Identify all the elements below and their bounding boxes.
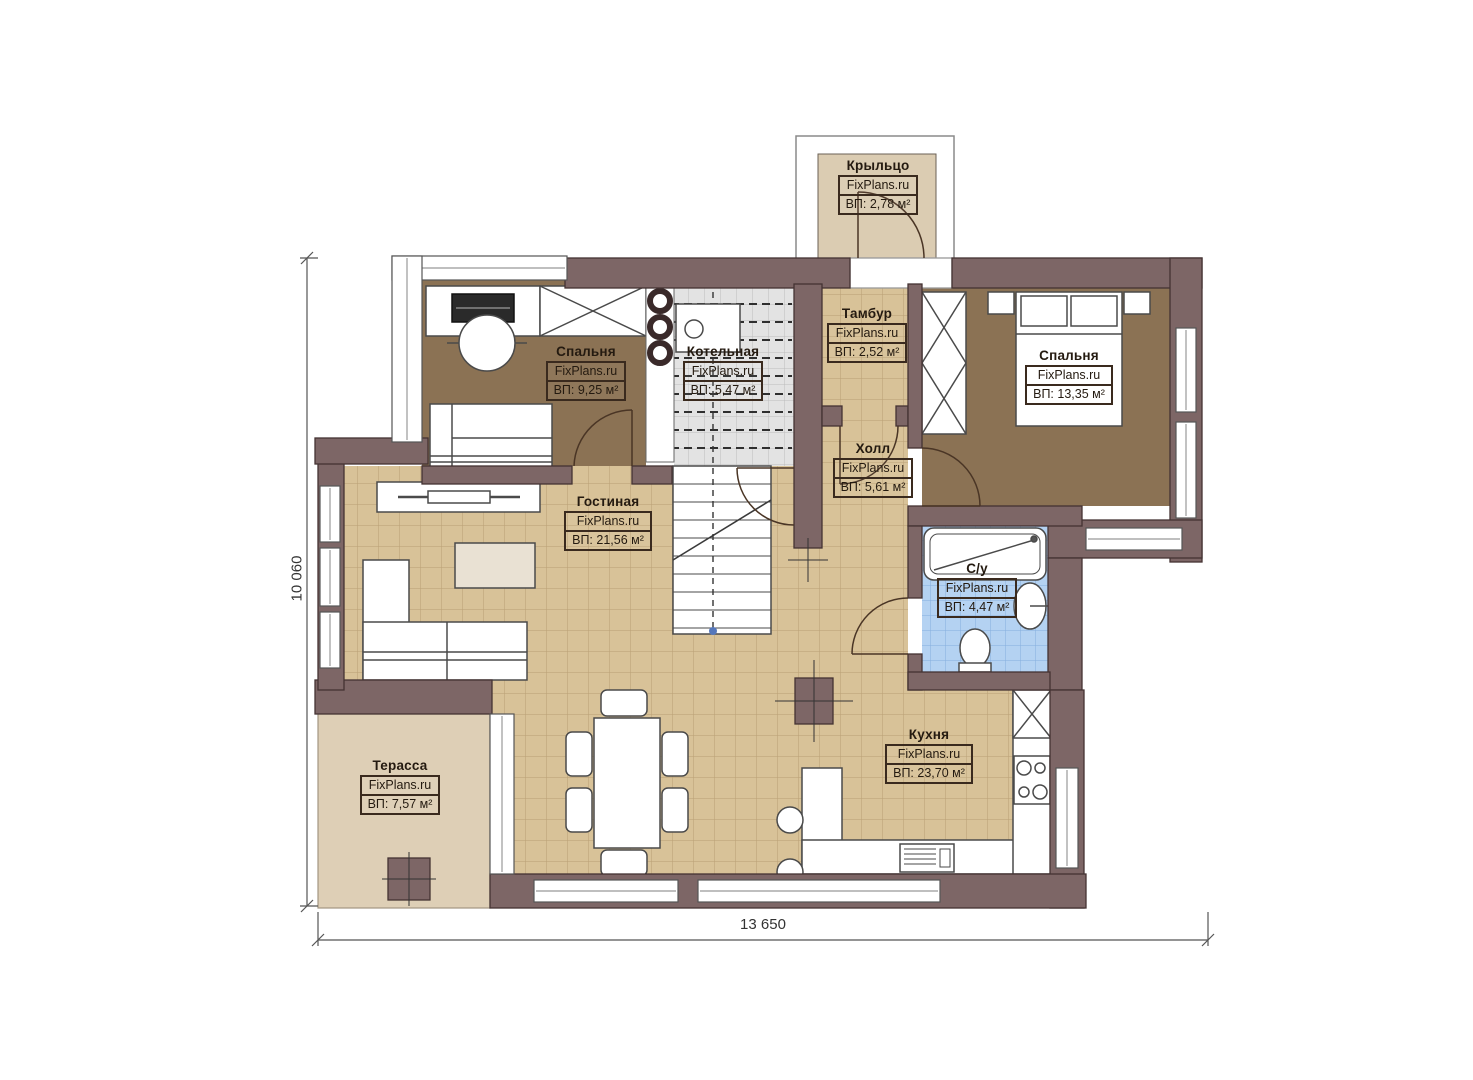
- room-label-bedroom1: Спальня FixPlans.ru ВП: 9,25 м²: [520, 344, 652, 401]
- nightstand: [1124, 292, 1150, 314]
- room-brand: FixPlans.ru: [362, 777, 439, 794]
- toilet: [960, 629, 990, 667]
- room-area: ВП: 23,70 м²: [887, 763, 971, 782]
- room-name: Крыльцо: [812, 158, 944, 173]
- room-label-boxes: FixPlans.ru ВП: 5,61 м²: [833, 458, 914, 498]
- floor-plan: Крыльцо FixPlans.ru ВП: 2,78 м² Спальня …: [0, 0, 1473, 1080]
- room-brand: FixPlans.ru: [685, 363, 762, 380]
- room-name: Спальня: [1003, 348, 1135, 363]
- room-name: Кухня: [863, 727, 995, 742]
- coffee-table: [455, 543, 535, 588]
- room-label-boxes: FixPlans.ru ВП: 2,78 м²: [838, 175, 919, 215]
- room-name: Холл: [807, 441, 939, 456]
- room-label-boiler: Котельная FixPlans.ru ВП: 5,47 м²: [657, 344, 789, 401]
- room-label-terrace: Терасса FixPlans.ru ВП: 7,57 м²: [334, 758, 466, 815]
- room-label-boxes: FixPlans.ru ВП: 23,70 м²: [885, 744, 973, 784]
- pillow: [1021, 296, 1067, 326]
- room-label-boxes: FixPlans.ru ВП: 7,57 м²: [360, 775, 441, 815]
- tv: [428, 491, 490, 503]
- room-label-boxes: FixPlans.ru ВП: 21,56 м²: [564, 511, 652, 551]
- room-name: С/у: [911, 561, 1043, 576]
- room-area: ВП: 7,57 м²: [362, 794, 439, 813]
- room-name: Терасса: [334, 758, 466, 773]
- room-label-boxes: FixPlans.ru ВП: 9,25 м²: [546, 361, 627, 401]
- room-name: Спальня: [520, 344, 652, 359]
- room-area: ВП: 4,47 м²: [939, 597, 1016, 616]
- chair: [566, 732, 592, 776]
- pillow: [1071, 296, 1117, 326]
- room-name: Гостиная: [542, 494, 674, 509]
- room-label-porch: Крыльцо FixPlans.ru ВП: 2,78 м²: [812, 158, 944, 215]
- desk-chair: [459, 315, 515, 371]
- chair: [566, 788, 592, 832]
- room-area: ВП: 2,52 м²: [829, 342, 906, 361]
- room-name: Котельная: [657, 344, 789, 359]
- room-brand: FixPlans.ru: [939, 580, 1016, 597]
- stair-direction-dot: [709, 627, 717, 635]
- chair: [662, 788, 688, 832]
- boiler-sink: [685, 320, 703, 338]
- chair: [601, 690, 647, 716]
- room-brand: FixPlans.ru: [840, 177, 917, 194]
- room-label-tambour: Тамбур FixPlans.ru ВП: 2,52 м²: [801, 306, 933, 363]
- bar-stool: [777, 807, 803, 833]
- room-brand: FixPlans.ru: [1027, 367, 1111, 384]
- room-label-kitchen: Кухня FixPlans.ru ВП: 23,70 м²: [863, 727, 995, 784]
- room-brand: FixPlans.ru: [548, 363, 625, 380]
- room-name: Тамбур: [801, 306, 933, 321]
- room-label-boxes: FixPlans.ru ВП: 4,47 м²: [937, 578, 1018, 618]
- room-area: ВП: 21,56 м²: [566, 530, 650, 549]
- room-brand: FixPlans.ru: [887, 746, 971, 763]
- porch-door-opening: [850, 258, 952, 288]
- toilet-tank: [959, 663, 991, 672]
- room-label-boxes: FixPlans.ru ВП: 2,52 м²: [827, 323, 908, 363]
- room-label-living: Гостиная FixPlans.ru ВП: 21,56 м²: [542, 494, 674, 551]
- sofa: [363, 622, 527, 680]
- nightstand: [988, 292, 1014, 314]
- room-label-hall: Холл FixPlans.ru ВП: 5,61 м²: [807, 441, 939, 498]
- room-area: ВП: 5,47 м²: [685, 380, 762, 399]
- room-area: ВП: 13,35 м²: [1027, 384, 1111, 403]
- room-label-boxes: FixPlans.ru ВП: 5,47 м²: [683, 361, 764, 401]
- dining-table: [594, 718, 660, 848]
- room-label-boxes: FixPlans.ru ВП: 13,35 м²: [1025, 365, 1113, 405]
- room-label-bedroom2: Спальня FixPlans.ru ВП: 13,35 м²: [1003, 348, 1135, 405]
- chair: [662, 732, 688, 776]
- height-dimension-label: 10 060: [289, 534, 306, 624]
- room-brand: FixPlans.ru: [835, 460, 912, 477]
- room-area: ВП: 5,61 м²: [835, 477, 912, 496]
- room-label-bathroom: С/у FixPlans.ru ВП: 4,47 м²: [911, 561, 1043, 618]
- room-brand: FixPlans.ru: [829, 325, 906, 342]
- width-dimension-label: 13 650: [718, 916, 808, 933]
- room-brand: FixPlans.ru: [566, 513, 650, 530]
- room-area: ВП: 9,25 м²: [548, 380, 625, 399]
- room-area: ВП: 2,78 м²: [840, 194, 917, 213]
- chair: [601, 850, 647, 876]
